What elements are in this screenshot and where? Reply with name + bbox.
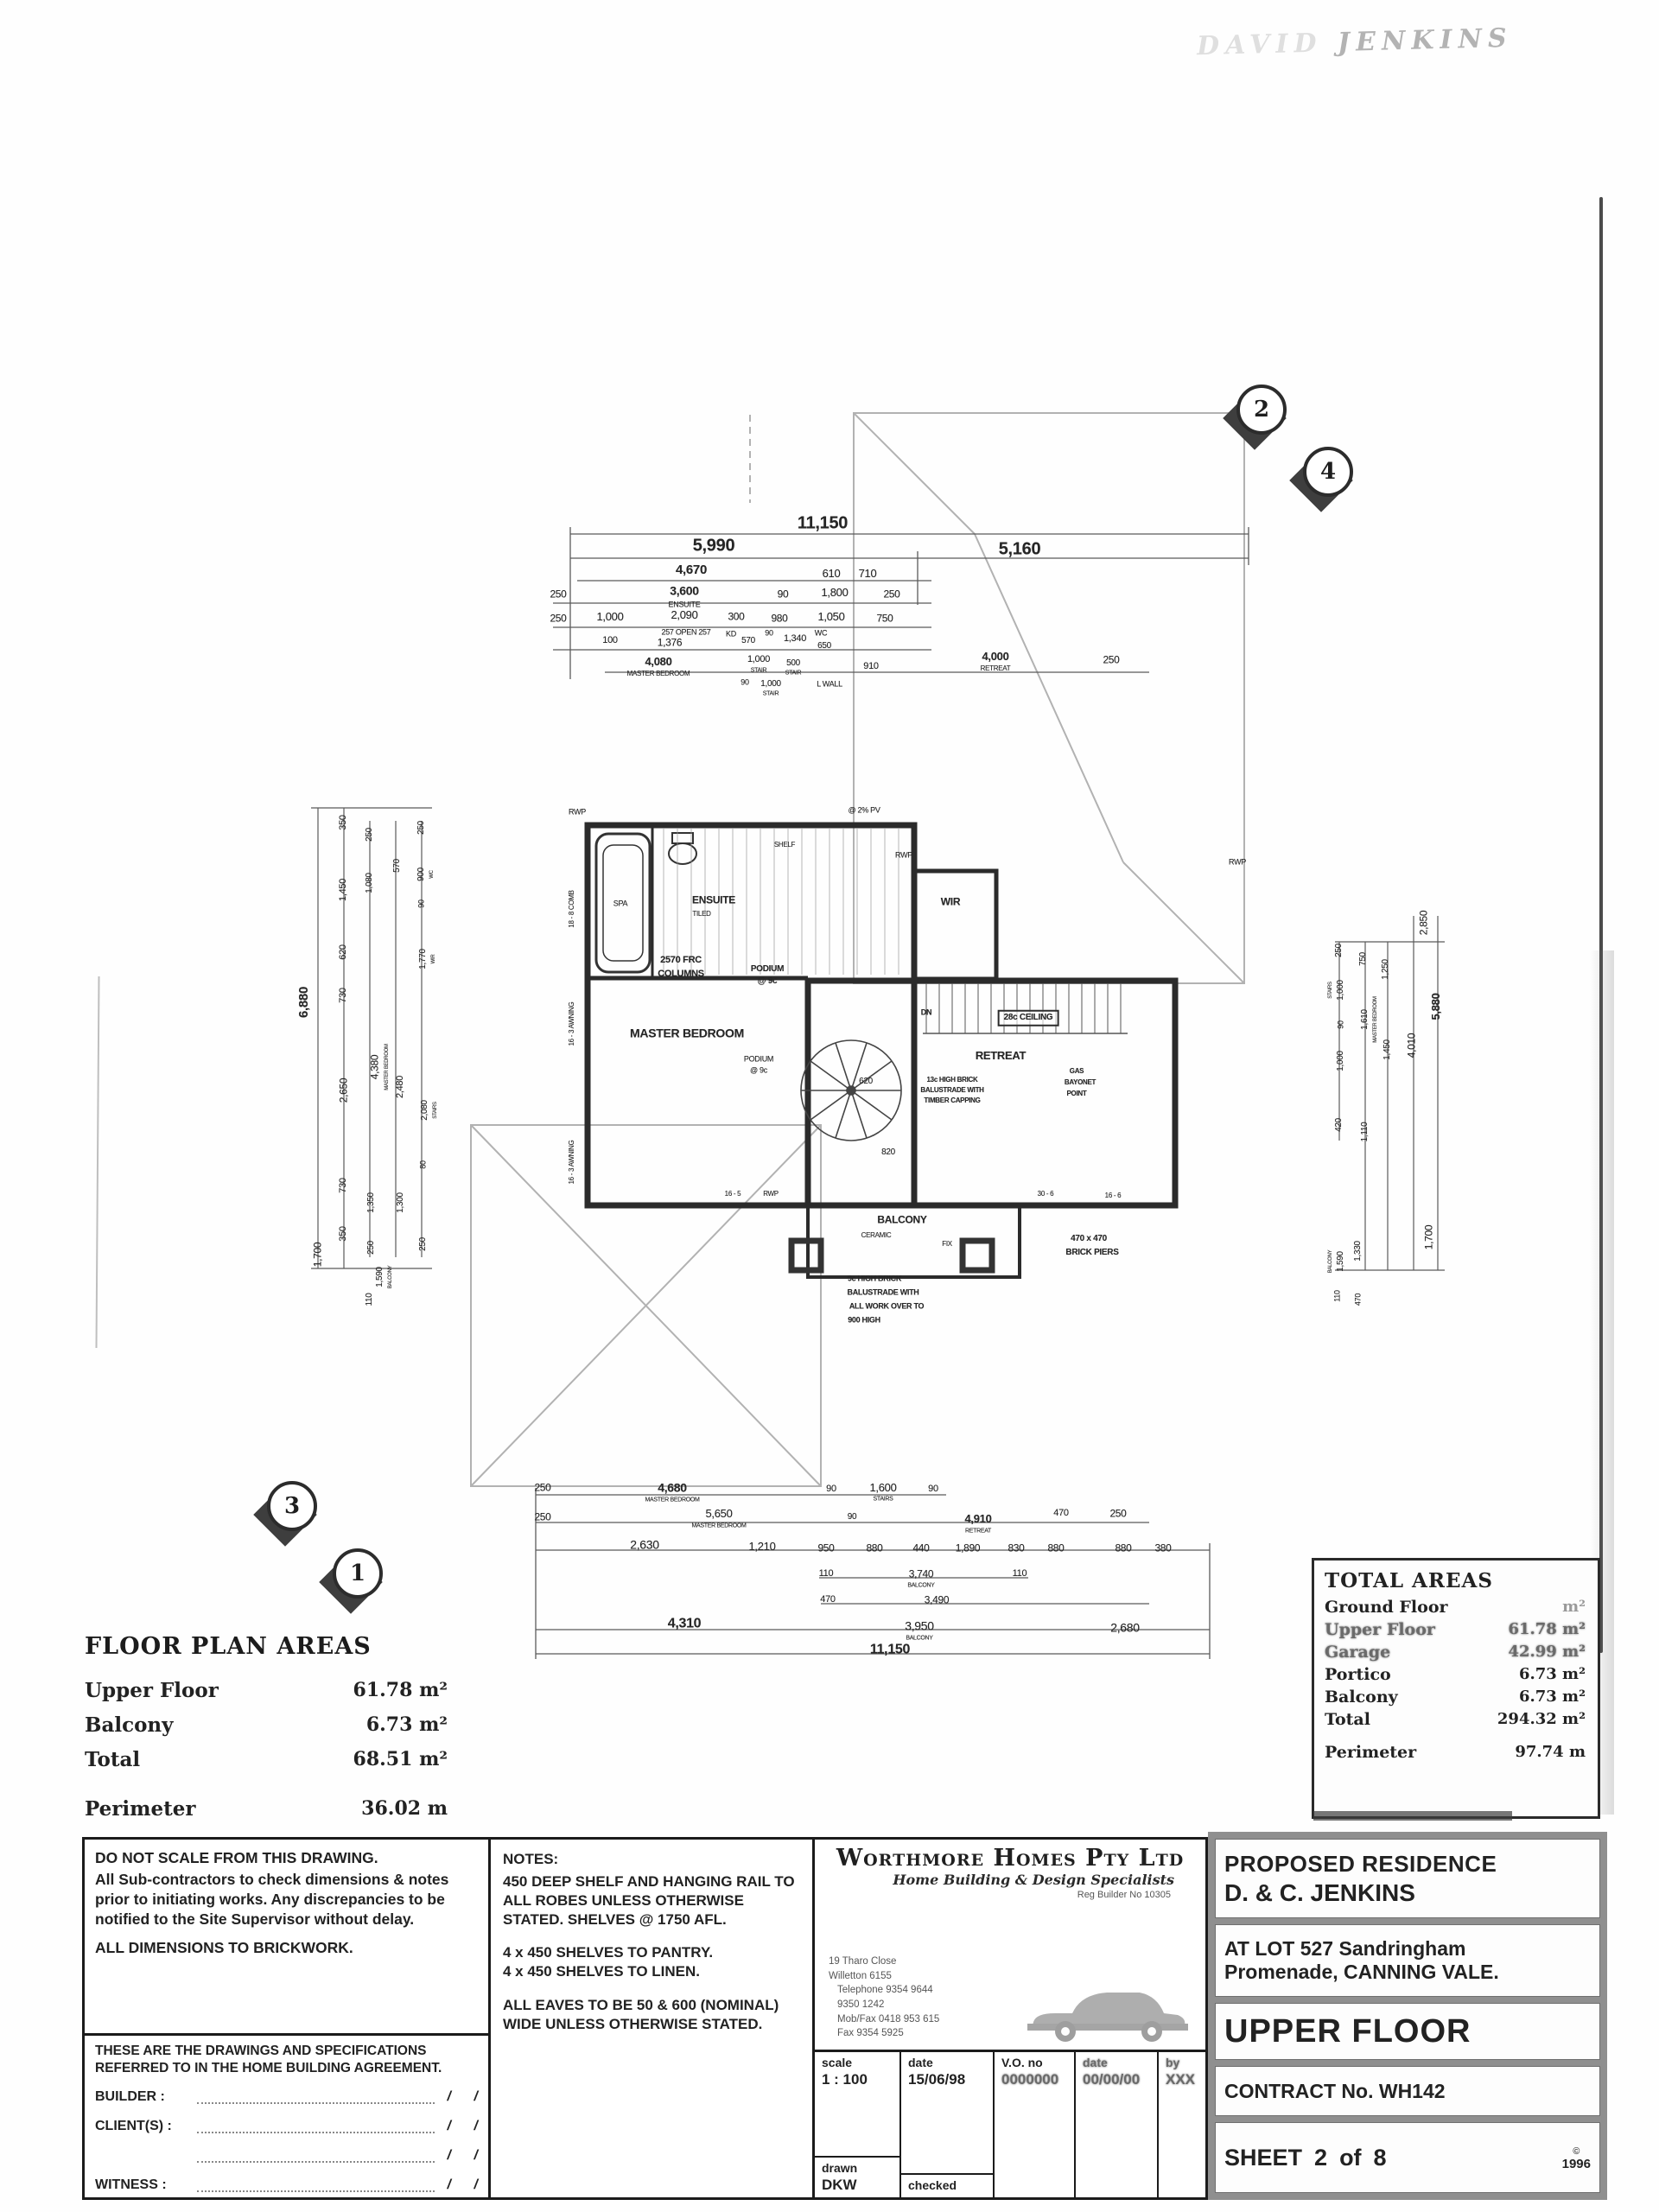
plan-label: 2,630 — [630, 1539, 659, 1552]
vo-value: 0000000 — [1001, 2071, 1067, 2088]
plan-label: RWP — [569, 808, 586, 816]
plan-label: 2,090 — [671, 609, 697, 621]
plan-label: 4,670 — [676, 563, 707, 577]
row-value: 97.74 m — [1515, 1743, 1586, 1762]
row-label: Total — [1325, 1710, 1370, 1729]
sheet-row: SHEET 2 of 8 © 1996 — [1224, 2145, 1591, 2171]
plan-label: 880 — [1047, 1543, 1064, 1554]
table-row: Ground Floor m² — [1325, 1598, 1586, 1617]
plan-label: RETREAT — [981, 665, 1011, 672]
title-block-contract: CONTRACT No. WH142 — [1215, 2066, 1600, 2116]
signature-date: / / — [447, 2147, 478, 2164]
company-registration: Reg Builder No 10305 — [823, 1890, 1197, 1900]
plan-label: 750 — [1359, 952, 1369, 966]
plan-label: 1,110 — [1361, 1122, 1370, 1142]
scale-block: scale 1 : 100 drawn DKW date 15/06/98 ch… — [815, 2052, 1205, 2197]
drawing-title: UPPER FLOOR — [1224, 2013, 1591, 2050]
plan-label: 1,800 — [821, 587, 848, 599]
plan-label: @ 9c — [750, 1066, 767, 1074]
plan-label: POINT — [1067, 1090, 1087, 1097]
plan-label: 110 — [1013, 1569, 1027, 1580]
plan-label: 3,600 — [670, 585, 699, 598]
section-marker-number: 1 — [333, 1548, 383, 1599]
note-2: 4 x 450 SHELVES TO PANTRY. — [503, 1943, 800, 1962]
plan-label: 1,210 — [748, 1541, 775, 1553]
handwritten-client-name: DAVID JENKINS — [1197, 21, 1612, 62]
plan-label: @ 9c — [758, 977, 777, 987]
plan-label: 730 — [339, 988, 349, 1002]
plan-label: 1,330 — [1354, 1241, 1363, 1262]
plan-label: 90 — [826, 1484, 836, 1495]
drawn-label: drawn — [815, 2156, 899, 2175]
plan-label: 950 — [817, 1543, 834, 1554]
plan-label: SHELF — [774, 842, 795, 849]
plan-label: 100 — [602, 636, 617, 646]
plan-label: BALCONY — [906, 1635, 932, 1641]
plan-label: 830 — [1007, 1543, 1024, 1554]
row-value: 61.78 m² — [1508, 1620, 1586, 1639]
title-line4: Promenade, CANNING VALE. — [1224, 1961, 1591, 1984]
plan-label: RWP — [763, 1191, 779, 1198]
disclaimer-line1: DO NOT SCALE FROM THIS DRAWING. — [95, 1848, 478, 1868]
plan-label: BALUSTRADE WITH — [848, 1288, 919, 1296]
company-mobile: Mob/Fax 0418 953 615 — [829, 2012, 939, 2027]
agreement-section: THESE ARE THE DRAWINGS AND SPECIFICATION… — [85, 2033, 488, 2197]
plan-label: 1,890 — [956, 1543, 981, 1554]
total-areas-title: TOTAL AREAS — [1325, 1569, 1586, 1592]
signature-line[interactable] — [197, 2151, 435, 2163]
scale-cell: scale 1 : 100 drawn DKW — [815, 2052, 901, 2197]
title-block-address: AT LOT 527 Sandringham Promenade, CANNIN… — [1215, 1924, 1600, 1997]
row-value: 36.02 m — [361, 1797, 448, 1821]
plan-label: DN — [921, 1008, 931, 1016]
title-line1: PROPOSED RESIDENCE — [1224, 1851, 1591, 1878]
plan-label: 2570 FRC — [660, 956, 702, 966]
plan-label: BALCONY — [907, 1582, 934, 1588]
plan-label: 1,590 — [376, 1267, 385, 1287]
signature-label: WITNESS : — [95, 2177, 192, 2194]
plan-label: 3,950 — [905, 1620, 934, 1633]
company-fax: Fax 9354 5925 — [829, 2026, 939, 2041]
table-row: Balcony 6.73 m² — [1325, 1688, 1586, 1707]
plan-label: 650 — [817, 642, 831, 652]
disclaimer-text: DO NOT SCALE FROM THIS DRAWING. All Sub-… — [85, 1840, 488, 2033]
note-4: ALL EAVES TO BE 50 & 600 (NOMINAL) WIDE … — [503, 1996, 800, 2034]
title-block-drawing-name: UPPER FLOOR — [1215, 2003, 1600, 2060]
sheet-label: SHEET — [1224, 2145, 1302, 2171]
plan-label: 1,590 — [1337, 1251, 1346, 1272]
plan-label: TIMBER CAPPING — [924, 1097, 980, 1104]
date-value: 15/06/98 — [908, 2071, 986, 2088]
plan-label: 3,740 — [909, 1569, 934, 1580]
signature-line[interactable] — [197, 2121, 435, 2133]
table-row: Upper Floor 61.78 m² — [85, 1679, 448, 1702]
plan-label: TILED — [692, 911, 710, 918]
contract-number: CONTRACT No. WH142 — [1224, 2080, 1591, 2103]
plan-label: 5,160 — [999, 541, 1041, 559]
plan-label: 5,990 — [693, 537, 735, 556]
row-value: m² — [1562, 1598, 1586, 1617]
plan-label: BRICK PIERS — [1065, 1249, 1118, 1258]
company-car-logo — [1020, 1982, 1193, 2044]
plan-label: 900 — [417, 868, 427, 881]
plan-label: 1,000 — [1337, 1051, 1346, 1071]
plan-label: 420 — [1335, 1118, 1344, 1132]
title-block-client: PROPOSED RESIDENCE D. & C. JENKINS — [1215, 1839, 1600, 1918]
row-value: 6.73 m² — [1519, 1688, 1586, 1707]
year-value: 1996 — [1562, 2157, 1591, 2171]
floor-plan-areas-title: FLOOR PLAN AREAS — [85, 1633, 448, 1660]
plan-label: 5,650 — [705, 1508, 732, 1520]
plan-label: 350 — [339, 1226, 349, 1241]
table-row: Upper Floor 61.78 m² — [1325, 1620, 1586, 1639]
date2-cell: date 00/00/00 — [1076, 2052, 1159, 2197]
plan-label: COLUMNS — [658, 969, 704, 980]
plan-label: 1,600 — [869, 1482, 896, 1494]
row-label: Balcony — [85, 1713, 174, 1737]
section-marker-number: 4 — [1303, 447, 1353, 497]
by-label: by — [1166, 2056, 1197, 2069]
signature-date: / / — [447, 2177, 478, 2194]
handwriting-surname: JENKINS — [1337, 23, 1513, 58]
plan-label: 1,000 — [760, 680, 781, 690]
plan-label: 570 — [741, 637, 755, 646]
checked-label: checked — [901, 2173, 993, 2192]
plan-label: 16 - 3 AWNING — [569, 1002, 575, 1046]
plan-label: 90 — [1337, 1020, 1344, 1028]
row-label: Upper Floor — [1325, 1620, 1435, 1639]
signature-row-witness: WITNESS : / / — [95, 2177, 478, 2194]
plan-label: 880 — [1115, 1543, 1131, 1554]
plan-label: 1,080 — [365, 873, 375, 893]
signature-date: / / — [447, 2088, 478, 2106]
disclaimer-cell: DO NOT SCALE FROM THIS DRAWING. All Sub-… — [85, 1840, 491, 2197]
plan-label: 500 — [786, 659, 800, 669]
plan-label: 90 — [928, 1484, 938, 1495]
date-label: date — [908, 2056, 986, 2069]
plan-label: 2,680 — [1110, 1622, 1140, 1635]
row-label: Garage — [1325, 1643, 1390, 1662]
signature-label: CLIENT(S) : — [95, 2118, 192, 2135]
company-address-line2: Willetton 6155 — [829, 1969, 939, 1984]
plan-label: 470 — [1053, 1509, 1068, 1519]
plan-label: 110 — [1333, 1290, 1341, 1301]
table-row: Garage 42.99 m² — [1325, 1643, 1586, 1662]
table-row: Perimeter 97.74 m — [1325, 1743, 1586, 1762]
plan-label: 250 — [417, 821, 427, 835]
by-cell: by XXX — [1159, 2052, 1204, 2197]
company-telephone2: 9350 1242 — [829, 1998, 939, 2012]
plan-label: PODIUM — [751, 965, 784, 975]
plan-label: WC — [429, 870, 435, 878]
plan-label: STAIR — [763, 690, 779, 696]
signature-row-clients: CLIENT(S) : / / — [95, 2118, 478, 2135]
row-label: Ground Floor — [1325, 1598, 1448, 1617]
plan-label: 90 — [741, 678, 748, 686]
table-row: Portico 6.73 m² — [1325, 1665, 1586, 1684]
plan-label: 80 — [419, 1160, 427, 1168]
plan-label: WIR — [431, 955, 436, 964]
row-label: Upper Floor — [85, 1679, 219, 1702]
plan-label: 250 — [550, 613, 566, 625]
plan-label: ALL WORK OVER TO — [849, 1302, 924, 1310]
notes-cell: NOTES: 450 DEEP SHELF AND HANGING RAIL T… — [491, 1840, 815, 2197]
company-address: 19 Tharo Close Willetton 6155 Telephone … — [829, 1955, 939, 2041]
plan-label: 440 — [912, 1543, 929, 1554]
company-tagline: Home Building & Design Specialists — [823, 1872, 1197, 1888]
plan-label: MASTER BEDROOM — [385, 1044, 390, 1090]
total-areas-table: TOTAL AREAS Ground Floor m² Upper Floor … — [1312, 1558, 1600, 1819]
plan-label: 4,310 — [668, 1618, 702, 1632]
plan-label: 4,380 — [370, 1055, 381, 1080]
plan-label: BALCONY — [877, 1215, 926, 1226]
plan-label: 470 x 470 — [1071, 1235, 1107, 1244]
table-row: Balcony 6.73 m² — [85, 1713, 448, 1737]
plan-label: PODIUM — [744, 1055, 773, 1063]
plan-label: STAIRS — [433, 1102, 438, 1118]
plan-label: 470 — [1354, 1294, 1362, 1306]
drawn-value: DKW — [822, 2177, 893, 2194]
plan-label: 110 — [819, 1569, 834, 1580]
plan-label: STAIRS — [874, 1496, 893, 1502]
plan-label: RWP — [1229, 858, 1246, 866]
title-line2: D. & C. JENKINS — [1224, 1879, 1591, 1907]
note-1: 450 DEEP SHELF AND HANGING RAIL TO ALL R… — [503, 1872, 800, 1929]
signature-label: BUILDER : — [95, 2088, 192, 2106]
plan-label: 470 — [820, 1595, 835, 1605]
plan-label: KD — [726, 630, 736, 638]
plan-label: 1,376 — [658, 638, 683, 649]
plan-label: 1,000 — [747, 655, 770, 665]
company-address-line1: 19 Tharo Close — [829, 1955, 939, 1969]
plan-label: BALCONY — [388, 1266, 393, 1289]
plan-label: 910 — [863, 662, 878, 672]
plan-label: 300 — [728, 612, 744, 623]
plan-label: 3,490 — [925, 1595, 950, 1606]
plan-label: 28c CEILING — [998, 1010, 1059, 1027]
date2-label: date — [1083, 2056, 1150, 2069]
handwriting-first-name: DAVID — [1197, 28, 1323, 61]
vo-label: V.O. no — [1001, 2056, 1067, 2069]
plan-label: 4,080 — [645, 656, 671, 668]
plan-label: MASTER BEDROOM — [1373, 996, 1378, 1042]
copyright-icon: © — [1562, 2146, 1591, 2157]
plan-label: 1,050 — [817, 611, 844, 623]
plan-label: 90 — [765, 629, 772, 637]
table-row: Total 294.32 m² — [1325, 1710, 1586, 1729]
row-value: 42.99 m² — [1508, 1643, 1586, 1662]
plan-label: @ 2% PV — [848, 806, 880, 814]
plan-label: 257 OPEN 257 — [662, 628, 711, 636]
plan-label: MASTER BEDROOM — [691, 1522, 746, 1529]
plan-label: 820 — [881, 1148, 895, 1158]
section-marker-number: 2 — [1236, 385, 1287, 435]
plan-label: 1,000 — [1337, 980, 1346, 1001]
disclaimer-line2: ALL DIMENSIONS TO BRICKWORK. — [95, 1938, 478, 1958]
signature-row-extra: / / — [95, 2147, 478, 2164]
plan-label: 620 — [339, 944, 349, 959]
plan-label: 750 — [876, 613, 893, 625]
sheet-of-label: of — [1339, 2145, 1361, 2171]
plan-label: 1,770 — [419, 949, 429, 969]
plan-label: 880 — [866, 1543, 882, 1554]
plan-label: L WALL — [817, 680, 842, 688]
plan-label: 1,700 — [313, 1243, 324, 1268]
note-3: 4 x 450 SHELVES TO LINEN. — [503, 1962, 800, 1981]
plan-label: 11,150 — [798, 515, 848, 533]
row-value: 6.73 m² — [366, 1713, 448, 1737]
row-label: Balcony — [1325, 1688, 1398, 1707]
plan-label: 250 — [367, 1241, 377, 1255]
plan-label: 30 - 6 — [1038, 1191, 1054, 1198]
plan-label: 350 — [339, 815, 349, 829]
signature-line[interactable] — [197, 2092, 435, 2104]
plan-label: 11,150 — [870, 1643, 910, 1658]
plan-label: 90 — [848, 1513, 857, 1522]
company-block: Worthmore Homes Pty Ltd Home Building & … — [815, 1840, 1205, 2052]
plan-label: 570 — [393, 859, 403, 873]
by-value: XXX — [1166, 2071, 1197, 2088]
plan-label: GAS — [1070, 1068, 1084, 1075]
title-line3: AT LOT 527 Sandringham — [1224, 1937, 1591, 1961]
plan-label: FIX — [942, 1241, 952, 1248]
table-row: Perimeter 36.02 m — [85, 1797, 448, 1821]
plan-label: WIR — [941, 897, 960, 908]
plan-label: 250 — [419, 1237, 429, 1251]
floor-plan-areas-table: FLOOR PLAN AREAS Upper Floor 61.78 m² Ba… — [85, 1633, 448, 1832]
signature-row-builder: BUILDER : / / — [95, 2088, 478, 2106]
plan-label: STAIR — [751, 667, 767, 673]
row-value: 68.51 m² — [353, 1748, 448, 1771]
notes-title: NOTES: — [503, 1850, 800, 1869]
plan-label: 16 - 6 — [1105, 1192, 1122, 1199]
plan-label: 1,000 — [596, 611, 623, 623]
plan-label: 1,450 — [1383, 1039, 1393, 1060]
plan-label: 1,350 — [367, 1192, 377, 1213]
table-row: Total 68.51 m² — [85, 1748, 448, 1771]
signature-line[interactable] — [197, 2180, 435, 2192]
plan-label: 2,650 — [339, 1078, 350, 1103]
agreement-text: THESE ARE THE DRAWINGS AND SPECIFICATION… — [95, 2043, 478, 2076]
sheet-total: 8 — [1374, 2145, 1387, 2171]
plan-label: 980 — [771, 613, 787, 625]
plan-label: MASTER BEDROOM — [627, 671, 690, 677]
scale-label: scale — [822, 2056, 893, 2069]
title-block-sheet: SHEET 2 of 8 © 1996 — [1215, 2122, 1600, 2193]
plan-label: 250 — [883, 589, 899, 601]
plan-label: 1,300 — [397, 1192, 406, 1213]
plan-label: 250 — [1109, 1509, 1126, 1520]
scale-value: 1 : 100 — [822, 2071, 893, 2088]
date2-value: 00/00/00 — [1083, 2071, 1150, 2088]
row-value: 61.78 m² — [353, 1679, 448, 1702]
vo-cell: V.O. no 0000000 — [995, 2052, 1076, 2197]
plan-label: 250 — [550, 589, 566, 601]
plan-label: 4,680 — [658, 1482, 687, 1495]
title-block: PROPOSED RESIDENCE D. & C. JENKINS AT LO… — [1208, 1832, 1607, 2200]
company-name: Worthmore Homes Pty Ltd — [823, 1845, 1197, 1872]
company-cell: Worthmore Homes Pty Ltd Home Building & … — [815, 1840, 1205, 2197]
plan-label: 2,850 — [1419, 911, 1430, 936]
plan-label: 1,450 — [339, 879, 349, 901]
drawing-sheet: DAVID JENKINS — [0, 0, 1659, 2212]
plan-label: 1,340 — [784, 634, 806, 645]
plan-label: 730 — [339, 1178, 349, 1192]
plan-label: 4,010 — [1407, 1033, 1418, 1058]
plan-label: 1,700 — [1424, 1225, 1435, 1250]
signature-date: / / — [447, 2118, 478, 2135]
footer-strip: DO NOT SCALE FROM THIS DRAWING. All Sub-… — [82, 1837, 1208, 2200]
plan-label: 4,000 — [982, 651, 1008, 663]
plan-label: 9c HIGH BRICK — [848, 1274, 901, 1282]
plan-label: 6,880 — [297, 987, 311, 1018]
sheet-number: 2 — [1314, 2145, 1327, 2171]
plan-label: 250 — [534, 1483, 550, 1494]
plan-label: 2,480 — [396, 1076, 406, 1098]
plan-label: 90 — [417, 899, 425, 907]
row-label: Perimeter — [85, 1797, 196, 1821]
plan-label: 250 — [534, 1512, 550, 1523]
plan-label: BAYONET — [1065, 1079, 1096, 1086]
row-value: 6.73 m² — [1519, 1665, 1586, 1684]
section-marker-number: 3 — [267, 1481, 317, 1531]
year-stamp: © 1996 — [1562, 2146, 1591, 2171]
plan-label: 5,880 — [1430, 993, 1442, 1020]
scan-smear-artifact — [1313, 1811, 1512, 1821]
plan-label: ENSUITE — [692, 895, 735, 906]
plan-label: WC — [815, 629, 827, 637]
plan-label: CERAMIC — [861, 1232, 892, 1239]
plan-label: 250 — [365, 828, 375, 842]
plan-label: 13c HIGH BRICK — [927, 1077, 978, 1084]
disclaimer-body: All Sub-contractors to check dimensions … — [95, 1870, 478, 1929]
plan-label: BALUSTRADE WITH — [920, 1087, 983, 1094]
plan-label: 18 - 8 COMB — [569, 890, 575, 927]
plan-label: 110 — [365, 1293, 375, 1306]
plan-label: BALCONY — [1328, 1250, 1333, 1274]
plan-label: 710 — [859, 568, 877, 580]
row-label: Total — [85, 1748, 140, 1771]
plan-label: 16 - 3 AWNING — [569, 1141, 575, 1185]
plan-label: 2,080 — [421, 1100, 430, 1121]
plan-label: MASTER BEDROOM — [645, 1497, 699, 1503]
plan-label: 16 - 5 — [725, 1191, 741, 1198]
plan-label: STAIR — [785, 670, 802, 676]
date-cell: date 15/06/98 checked — [901, 2052, 995, 2197]
plan-label: 1,250 — [1382, 959, 1391, 980]
plan-label: 90 — [778, 589, 789, 601]
plan-label: STAIRS — [1328, 982, 1333, 998]
plan-label: 1,610 — [1361, 1009, 1370, 1030]
company-telephone1: Telephone 9354 9644 — [829, 1983, 939, 1998]
scan-fold-artifact — [95, 976, 99, 1348]
row-label: Perimeter — [1325, 1743, 1416, 1762]
plan-label: MASTER BEDROOM — [630, 1027, 744, 1040]
plan-label: RWP — [895, 851, 912, 859]
plan-label: 900 HIGH — [848, 1316, 880, 1324]
row-label: Portico — [1325, 1665, 1391, 1684]
plan-label: 380 — [1154, 1543, 1171, 1554]
plan-label: SPA — [613, 899, 627, 907]
plan-label: 620 — [859, 1077, 873, 1087]
plan-label: 250 — [1335, 944, 1344, 957]
plan-label: RETREAT — [965, 1528, 991, 1534]
row-value: 294.32 m² — [1497, 1710, 1586, 1729]
plan-label: 4,910 — [964, 1513, 991, 1525]
plan-label: 610 — [823, 568, 841, 580]
plan-label: 250 — [1103, 655, 1119, 666]
plan-label: RETREAT — [976, 1050, 1026, 1062]
